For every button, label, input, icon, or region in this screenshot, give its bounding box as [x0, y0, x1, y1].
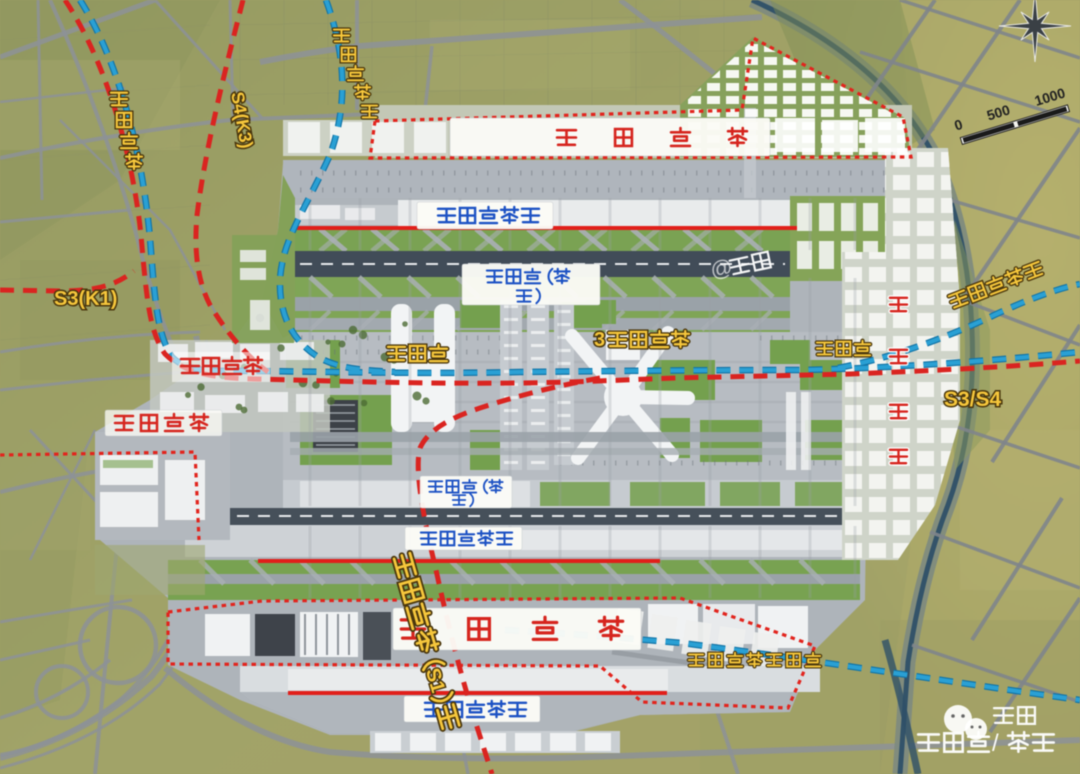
svg-text:S3(K1): S3(K1) — [54, 288, 117, 310]
svg-text:3: 3 — [594, 329, 605, 351]
svg-text:S3/S4: S3/S4 — [944, 388, 1002, 411]
svg-text:/: / — [992, 730, 999, 757]
